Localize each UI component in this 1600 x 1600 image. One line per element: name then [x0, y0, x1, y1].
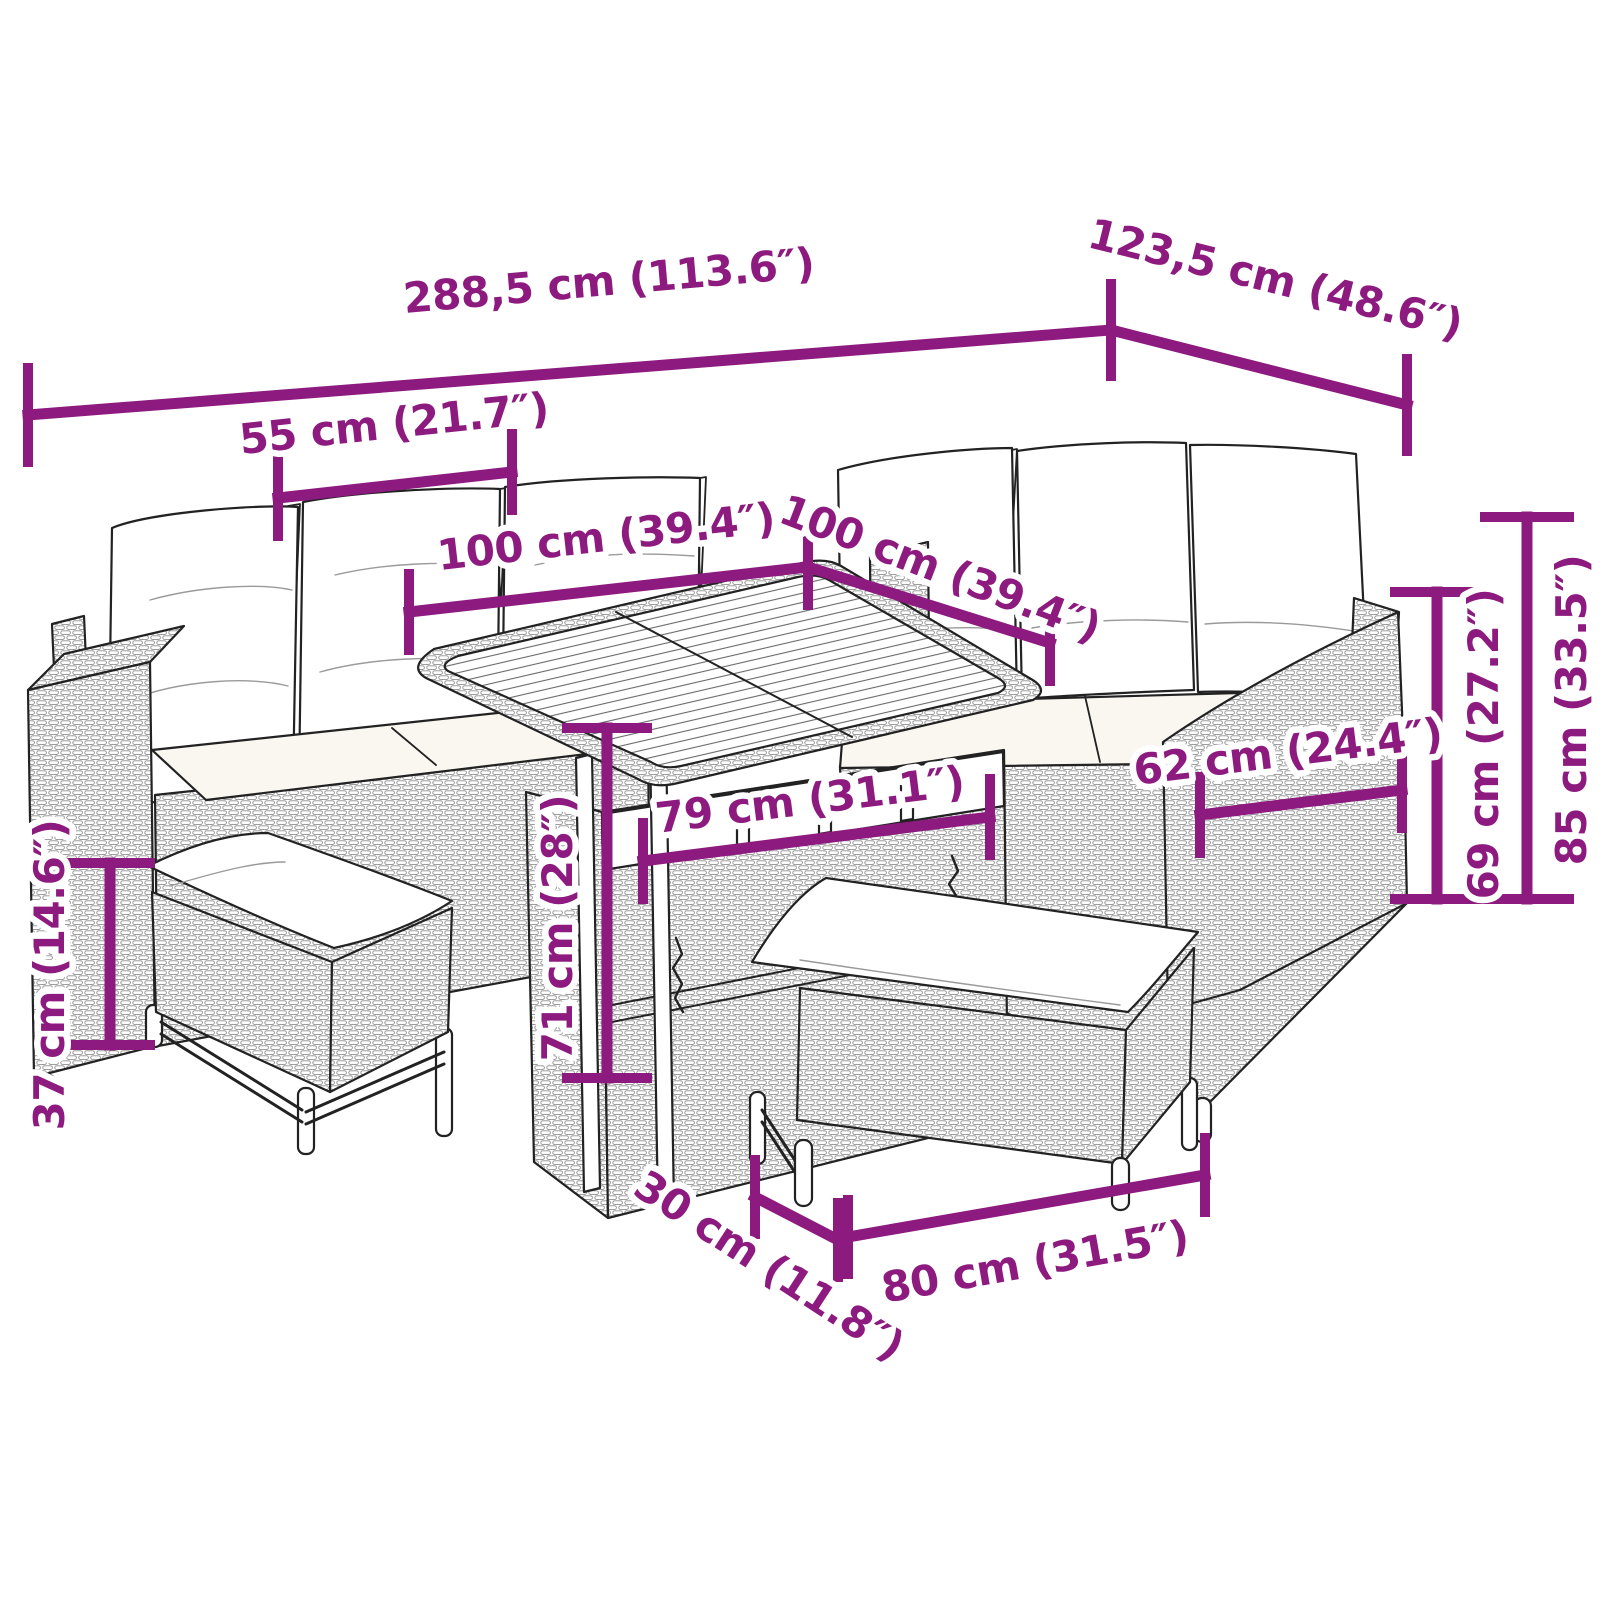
dimension-diagram-page: 288,5 cm (113.6″) 123,5 cm (48.6″) 55 cm… — [0, 0, 1600, 1600]
furniture-dimension-diagram: 288,5 cm (113.6″) 123,5 cm (48.6″) 55 cm… — [0, 0, 1600, 1600]
label-table-height: 71 cm (28″) — [533, 795, 582, 1061]
label-backrest-height: 69 cm (27.2″) — [1459, 589, 1508, 900]
label-total-height: 85 cm (33.5″) — [1547, 555, 1596, 866]
label-bench-height: 37 cm (14.6″) — [25, 820, 74, 1131]
